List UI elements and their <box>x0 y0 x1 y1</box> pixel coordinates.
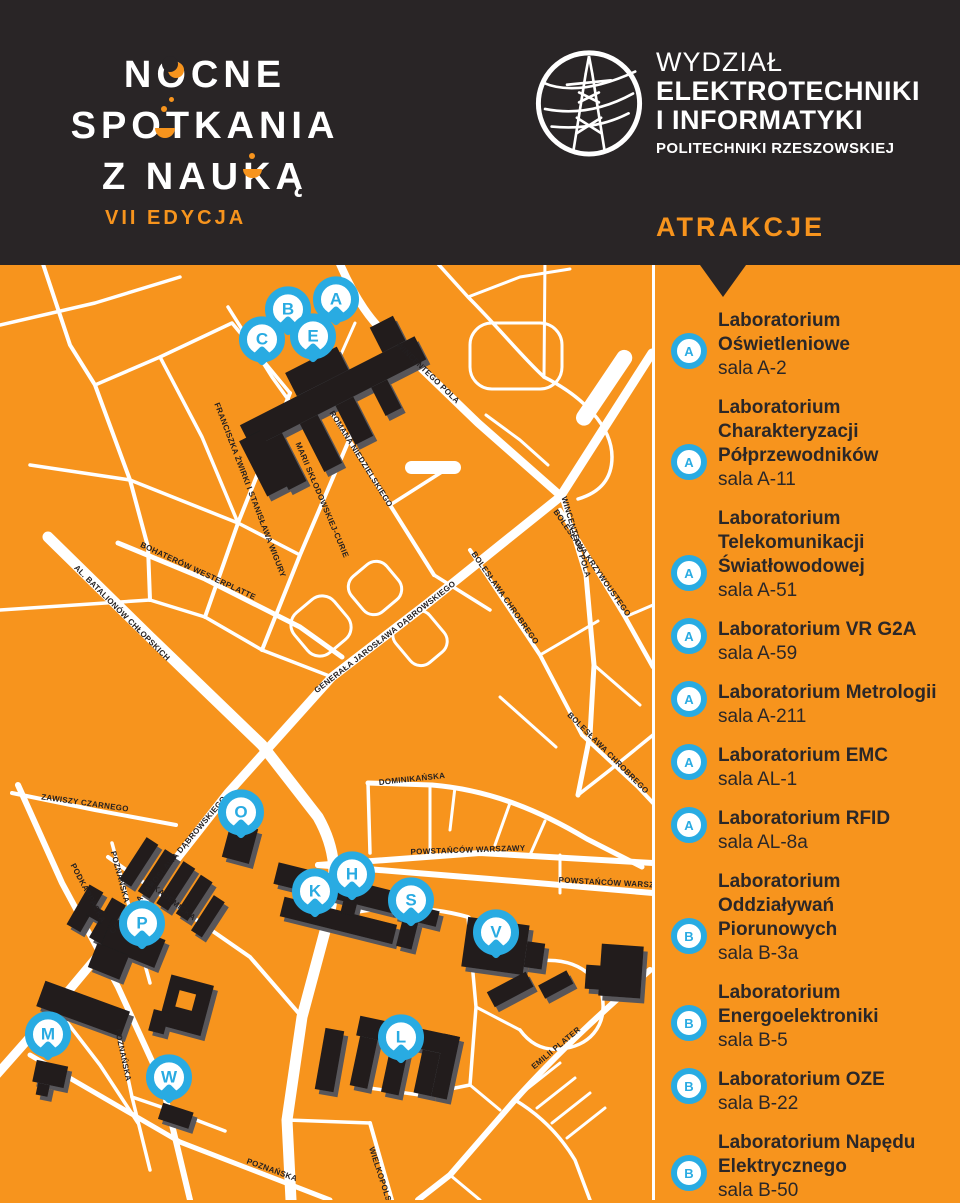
attraction-room: sala A-2 <box>718 357 948 381</box>
poster: { "colors":{"orange":"#F7941D","dark":"#… <box>0 0 960 1200</box>
bubble-decor-icon <box>169 97 174 102</box>
location-pin-icon: B <box>671 1155 707 1191</box>
event-logo-line2: SPOTKANIA <box>30 101 380 152</box>
attraction-item: A Laboratorium Telekomunikacji Światłowo… <box>656 507 960 603</box>
attractions-heading: ATRAKCJE <box>656 212 825 243</box>
faculty-line2: ELEKTROTECHNIKI <box>656 77 920 106</box>
location-pin-icon: B <box>671 1005 707 1041</box>
attraction-room: sala B-5 <box>718 1029 948 1053</box>
campus-map: WINCENTEGO POLAWINCENTEGO POLAROMANA NIE… <box>0 265 653 1200</box>
attraction-item: A Laboratorium VR G2A sala A-59 <box>656 618 960 666</box>
pin-letter: B <box>684 1016 693 1031</box>
pin-letter: K <box>309 881 321 901</box>
attraction-room: sala A-59 <box>718 642 916 666</box>
attraction-title: Laboratorium Charakteryzacji Półprzewodn… <box>718 396 948 468</box>
location-pin-icon: A <box>671 681 707 717</box>
map-pin-P: P <box>119 900 165 946</box>
location-pin-icon: B <box>671 1068 707 1104</box>
heading-pointer-triangle <box>700 265 746 297</box>
map-graphics <box>0 265 653 1200</box>
event-logo: NOCNE SPOTKANIA Z NAUKĄ VII EDYCJA <box>30 50 380 230</box>
attraction-title: Laboratorium Napędu Elektrycznego <box>718 1131 948 1179</box>
map-pin-M: M <box>25 1011 71 1057</box>
attraction-room: sala B-3a <box>718 942 948 966</box>
faculty-line1: WYDZIAŁ <box>656 48 920 77</box>
attraction-room: sala AL-8a <box>718 831 890 855</box>
map-pin-W: W <box>146 1054 192 1100</box>
pin-letter: H <box>346 864 358 884</box>
map-pin-O: O <box>218 789 264 835</box>
attraction-item: A Laboratorium EMC sala AL-1 <box>656 744 960 792</box>
pin-letter: A <box>330 289 342 309</box>
pin-letter: B <box>282 299 294 319</box>
event-edition: VII EDYCJA <box>105 207 380 230</box>
pin-letter: A <box>684 455 693 470</box>
attraction-title: Laboratorium Metrologii <box>718 681 937 705</box>
attraction-item: B Laboratorium OZE sala B-22 <box>656 1068 960 1116</box>
pin-letter: L <box>396 1027 406 1047</box>
pin-letter: M <box>41 1024 55 1044</box>
map-pin-E: E <box>290 313 336 359</box>
pin-letter: P <box>136 913 147 933</box>
map-pin-S: S <box>388 877 434 923</box>
location-pin-icon: A <box>671 744 707 780</box>
event-logo-line3: Z NAUKĄ <box>30 152 380 203</box>
header: NOCNE SPOTKANIA Z NAUKĄ VII EDYCJA WYDZI… <box>0 0 960 265</box>
pin-letter: S <box>405 890 416 910</box>
location-pin-icon: A <box>671 618 707 654</box>
location-pin-icon: A <box>671 444 707 480</box>
attraction-room: sala A-211 <box>718 705 937 729</box>
attraction-title: Laboratorium Energoelektroniki <box>718 981 948 1029</box>
attraction-room: sala A-11 <box>718 468 948 492</box>
attraction-item: A Laboratorium RFID sala AL-8a <box>656 807 960 855</box>
attraction-item: A Laboratorium Oświetleniowe sala A-2 <box>656 309 960 381</box>
location-pin-icon: A <box>671 555 707 591</box>
attraction-title: Laboratorium Oddziaływań Piorunowych <box>718 870 948 942</box>
map-pin-H: H <box>329 851 375 897</box>
attraction-title: Laboratorium Oświetleniowe <box>718 309 948 357</box>
pin-letter: C <box>256 329 268 349</box>
event-logo-line1: NOCNE <box>30 50 380 101</box>
attraction-item: B Laboratorium Napędu Elektrycznego sala… <box>656 1131 960 1203</box>
attraction-title: Laboratorium Telekomunikacji Światłowodo… <box>718 507 948 579</box>
pin-letter: B <box>684 929 693 944</box>
attraction-item: B Laboratorium Oddziaływań Piorunowych s… <box>656 870 960 966</box>
faculty-logo: WYDZIAŁ ELEKTROTECHNIKI I INFORMATYKI PO… <box>534 40 920 168</box>
attraction-item: A Laboratorium Metrologii sala A-211 <box>656 681 960 729</box>
bubble-decor-icon <box>249 153 255 159</box>
attraction-title: Laboratorium VR G2A <box>718 618 916 642</box>
attraction-title: Laboratorium OZE <box>718 1068 885 1092</box>
map-pin-L: L <box>378 1014 424 1060</box>
attraction-room: sala B-50 <box>718 1179 948 1203</box>
attraction-room: sala B-22 <box>718 1092 885 1116</box>
attraction-item: A Laboratorium Charakteryzacji Półprzewo… <box>656 396 960 492</box>
pin-letter: A <box>684 692 693 707</box>
pin-letter: B <box>684 1079 693 1094</box>
location-pin-icon: A <box>671 807 707 843</box>
pin-letter: A <box>684 755 693 770</box>
location-pin-icon: B <box>671 918 707 954</box>
attraction-room: sala A-51 <box>718 579 948 603</box>
pin-letter: E <box>307 326 318 346</box>
buildings <box>30 311 644 1129</box>
pin-letter: A <box>684 818 693 833</box>
map-pin-V: V <box>473 909 519 955</box>
bubble-decor-icon <box>161 106 167 112</box>
moon-mask-decor <box>162 56 178 72</box>
pin-letter: V <box>490 922 501 942</box>
power-pylon-icon <box>534 40 644 168</box>
pin-letter: B <box>684 1166 693 1181</box>
attraction-item: B Laboratorium Energoelektroniki sala B-… <box>656 981 960 1053</box>
location-pin-icon: A <box>671 333 707 369</box>
pin-letter: O <box>234 802 247 822</box>
faculty-line3: I INFORMATYKI <box>656 106 920 135</box>
pin-letter: A <box>684 566 693 581</box>
pin-letter: W <box>161 1067 177 1087</box>
faculty-line4: POLITECHNIKI RZESZOWSKIEJ <box>656 140 920 157</box>
attraction-title: Laboratorium RFID <box>718 807 890 831</box>
attraction-title: Laboratorium EMC <box>718 744 888 768</box>
attraction-room: sala AL-1 <box>718 768 888 792</box>
map-sidebar-divider <box>652 265 655 1200</box>
pin-letter: A <box>684 344 693 359</box>
attractions-list: A Laboratorium Oświetleniowe sala A-2 A … <box>656 265 960 1200</box>
map-pin-C: C <box>239 316 285 362</box>
pin-letter: A <box>684 629 693 644</box>
